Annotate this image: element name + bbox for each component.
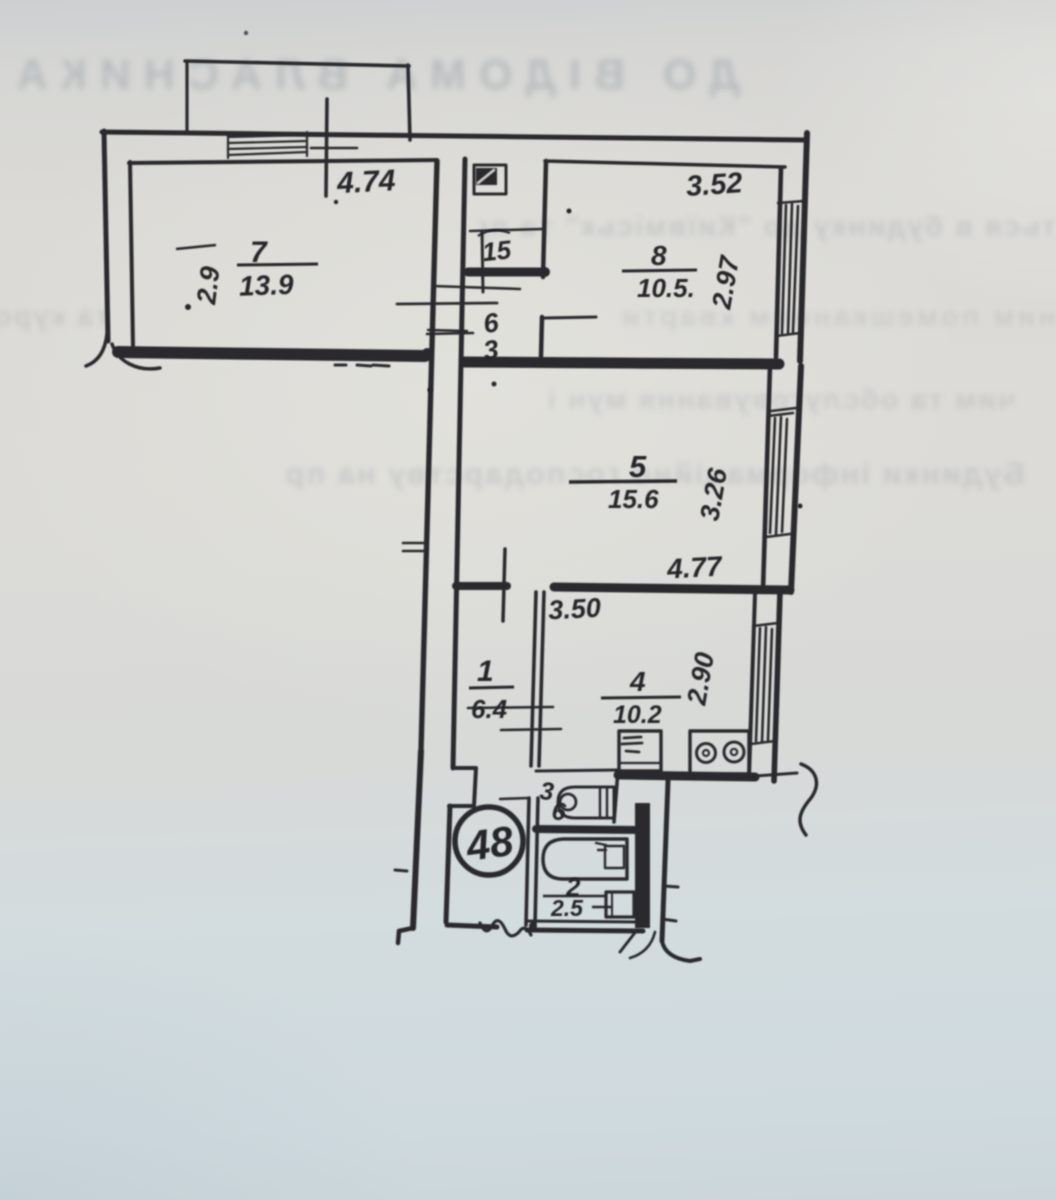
svg-text:2.90: 2.90 bbox=[681, 650, 720, 708]
svg-text:13.9: 13.9 bbox=[238, 269, 294, 302]
svg-text:8: 8 bbox=[651, 240, 667, 271]
svg-text:10.2: 10.2 bbox=[613, 701, 662, 729]
svg-text:2.97: 2.97 bbox=[706, 252, 745, 312]
svg-text:4.77: 4.77 bbox=[665, 551, 723, 585]
svg-text:5: 5 bbox=[629, 449, 647, 484]
svg-text:6: 6 bbox=[550, 797, 568, 826]
svg-text:1: 1 bbox=[477, 655, 494, 688]
svg-text:2.5: 2.5 bbox=[550, 895, 584, 921]
svg-text:3: 3 bbox=[481, 334, 500, 366]
svg-text:48: 48 bbox=[462, 817, 516, 870]
svg-text:15: 15 bbox=[481, 234, 513, 267]
svg-text:4: 4 bbox=[629, 666, 646, 697]
svg-text:2.9: 2.9 bbox=[191, 265, 225, 307]
svg-text:3.50: 3.50 bbox=[547, 593, 601, 626]
svg-text:15.6: 15.6 bbox=[608, 484, 659, 514]
svg-text:4.74: 4.74 bbox=[335, 164, 396, 200]
svg-text:6.4: 6.4 bbox=[471, 694, 508, 724]
svg-text:3.52: 3.52 bbox=[685, 167, 744, 203]
svg-text:10.5.: 10.5. bbox=[637, 273, 695, 303]
svg-text:3.26: 3.26 bbox=[694, 465, 733, 523]
